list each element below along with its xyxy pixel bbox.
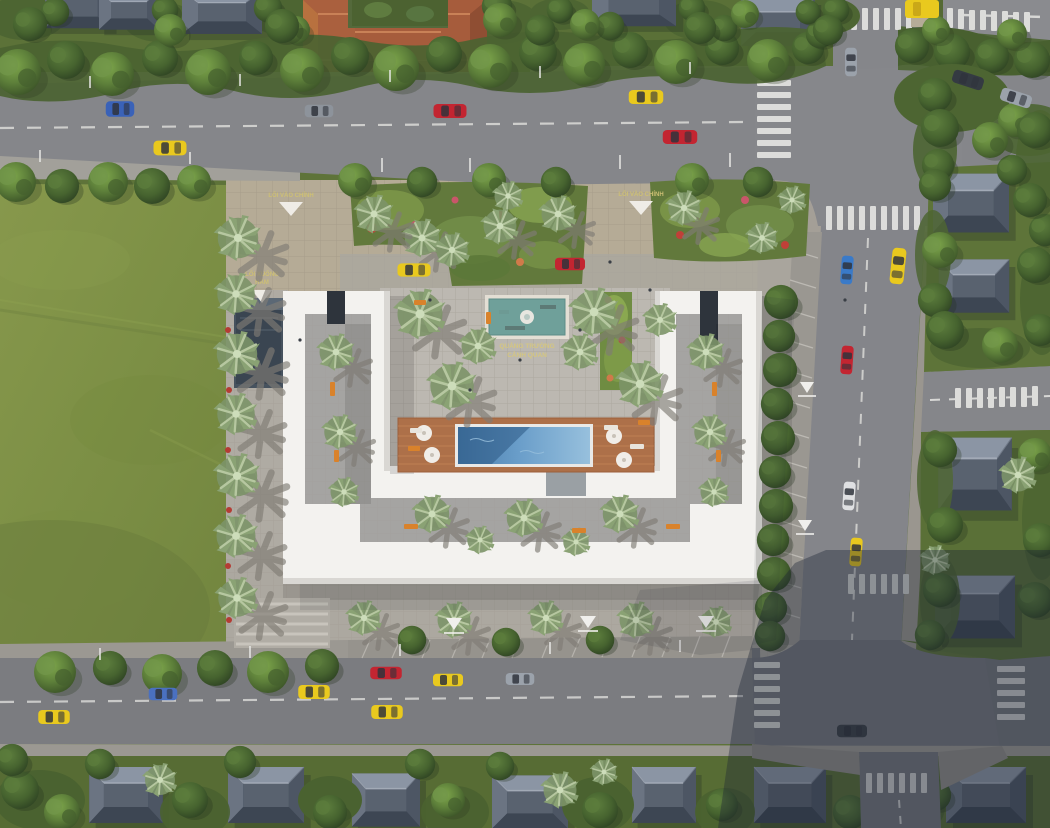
svg-text:LỐI VÀO CHÍNH: LỐI VÀO CHÍNH xyxy=(618,190,663,198)
svg-text:CẢNH QUAN: CẢNH QUAN xyxy=(507,350,547,359)
svg-text:LỐI VÀO CHÍNH: LỐI VÀO CHÍNH xyxy=(268,191,313,199)
svg-text:QUẢNG TRƯỜNG: QUẢNG TRƯỜNG xyxy=(499,341,554,350)
